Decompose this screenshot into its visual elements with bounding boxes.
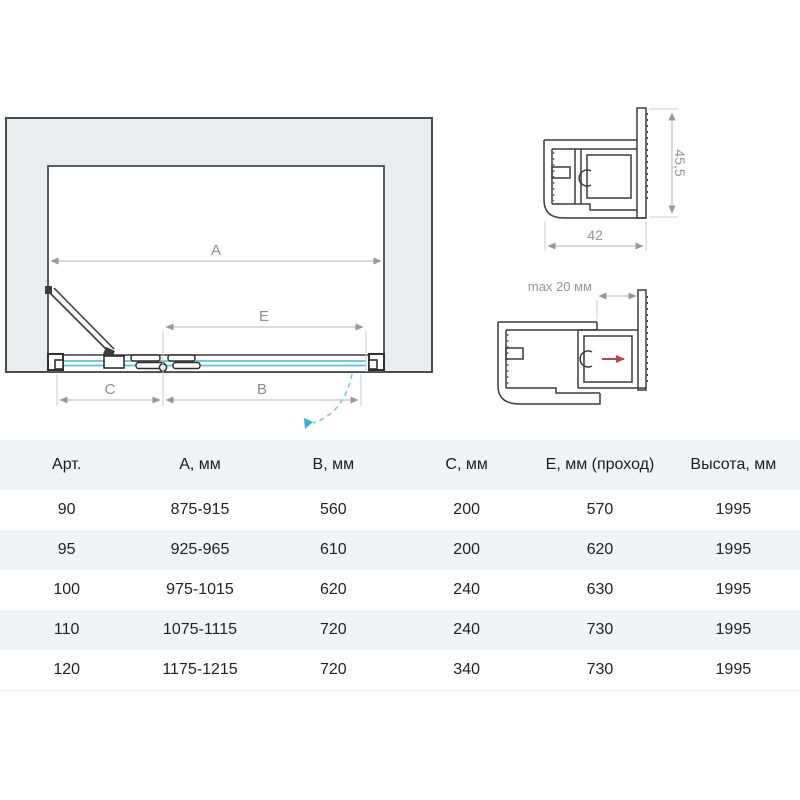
dimension-label-c: C <box>105 381 116 398</box>
col-header-art: Арт. <box>0 440 133 490</box>
profile-closed-dimensions: 45,5 42 <box>545 109 688 251</box>
col-header-e: Е, мм (проход) <box>533 440 666 490</box>
right-wall-bracket <box>369 354 384 370</box>
cell-b: 620 <box>267 570 400 610</box>
table-row: 100 975-1015 620 240 630 1995 <box>0 570 800 610</box>
glass-pocket <box>587 155 631 198</box>
cell-b: 720 <box>267 610 400 650</box>
table-row: 95 925-965 610 200 620 1995 <box>0 530 800 570</box>
cell-c: 200 <box>400 490 533 530</box>
screw-boss <box>580 351 592 367</box>
cell-a: 1175-1215 <box>133 650 266 690</box>
cell-height: 1995 <box>667 610 800 650</box>
table-row: 90 875-915 560 200 570 1995 <box>0 490 800 530</box>
col-header-a: А, мм <box>133 440 266 490</box>
col-header-c: С, мм <box>400 440 533 490</box>
profile-section-open <box>498 290 648 404</box>
cell-b: 560 <box>267 490 400 530</box>
table-row: 120 1175-1215 720 340 730 1995 <box>0 650 800 690</box>
wall-flange <box>638 290 646 390</box>
cell-height: 1995 <box>667 650 800 690</box>
door-pivot-block <box>104 356 124 368</box>
max-gap-label: max 20 мм <box>528 279 592 294</box>
cell-c: 240 <box>400 610 533 650</box>
cell-height: 1995 <box>667 490 800 530</box>
cell-height: 1995 <box>667 570 800 610</box>
door-swing-arc <box>304 374 352 429</box>
dimension-label-e: E <box>259 308 269 325</box>
cell-c: 200 <box>400 530 533 570</box>
table-row: 110 1075-1115 720 240 730 1995 <box>0 610 800 650</box>
cell-e: 730 <box>533 650 666 690</box>
cell-e: 630 <box>533 570 666 610</box>
plan-view: A E C B <box>6 118 432 429</box>
col-header-height: Высота, мм <box>667 440 800 490</box>
cell-c: 240 <box>400 570 533 610</box>
shower-door-spec-sheet: A E C B <box>0 0 800 800</box>
dimensions-table: Арт. А, мм В, мм С, мм Е, мм (проход) Вы… <box>0 440 800 691</box>
left-wall-bracket <box>48 354 63 370</box>
cell-b: 720 <box>267 650 400 690</box>
cell-art: 95 <box>0 530 133 570</box>
cell-a: 1075-1115 <box>133 610 266 650</box>
cell-c: 340 <box>400 650 533 690</box>
technical-diagram: A E C B <box>0 0 800 440</box>
spec-table: Арт. А, мм В, мм С, мм Е, мм (проход) Вы… <box>0 440 800 691</box>
cell-a: 975-1015 <box>133 570 266 610</box>
adjustment-tongue <box>552 167 570 178</box>
profile-height-label: 45,5 <box>672 149 688 176</box>
cell-a: 925-965 <box>133 530 266 570</box>
adjustment-tongue <box>506 348 523 359</box>
cell-art: 100 <box>0 570 133 610</box>
table-header-row: Арт. А, мм В, мм С, мм Е, мм (проход) Вы… <box>0 440 800 490</box>
profile-section-closed <box>544 108 648 218</box>
cell-e: 620 <box>533 530 666 570</box>
col-header-b: В, мм <box>267 440 400 490</box>
cell-a: 875-915 <box>133 490 266 530</box>
cell-b: 610 <box>267 530 400 570</box>
cell-e: 730 <box>533 610 666 650</box>
swing-arrowhead <box>304 418 313 429</box>
wall-flange <box>637 108 646 218</box>
cell-e: 570 <box>533 490 666 530</box>
cell-art: 120 <box>0 650 133 690</box>
cell-height: 1995 <box>667 530 800 570</box>
profile-width-label: 42 <box>587 227 603 243</box>
profile-open-dimensions: max 20 мм <box>528 279 636 319</box>
dimension-label-a: A <box>211 242 221 259</box>
cell-art: 90 <box>0 490 133 530</box>
cell-art: 110 <box>0 610 133 650</box>
dimension-label-b: B <box>257 381 267 398</box>
